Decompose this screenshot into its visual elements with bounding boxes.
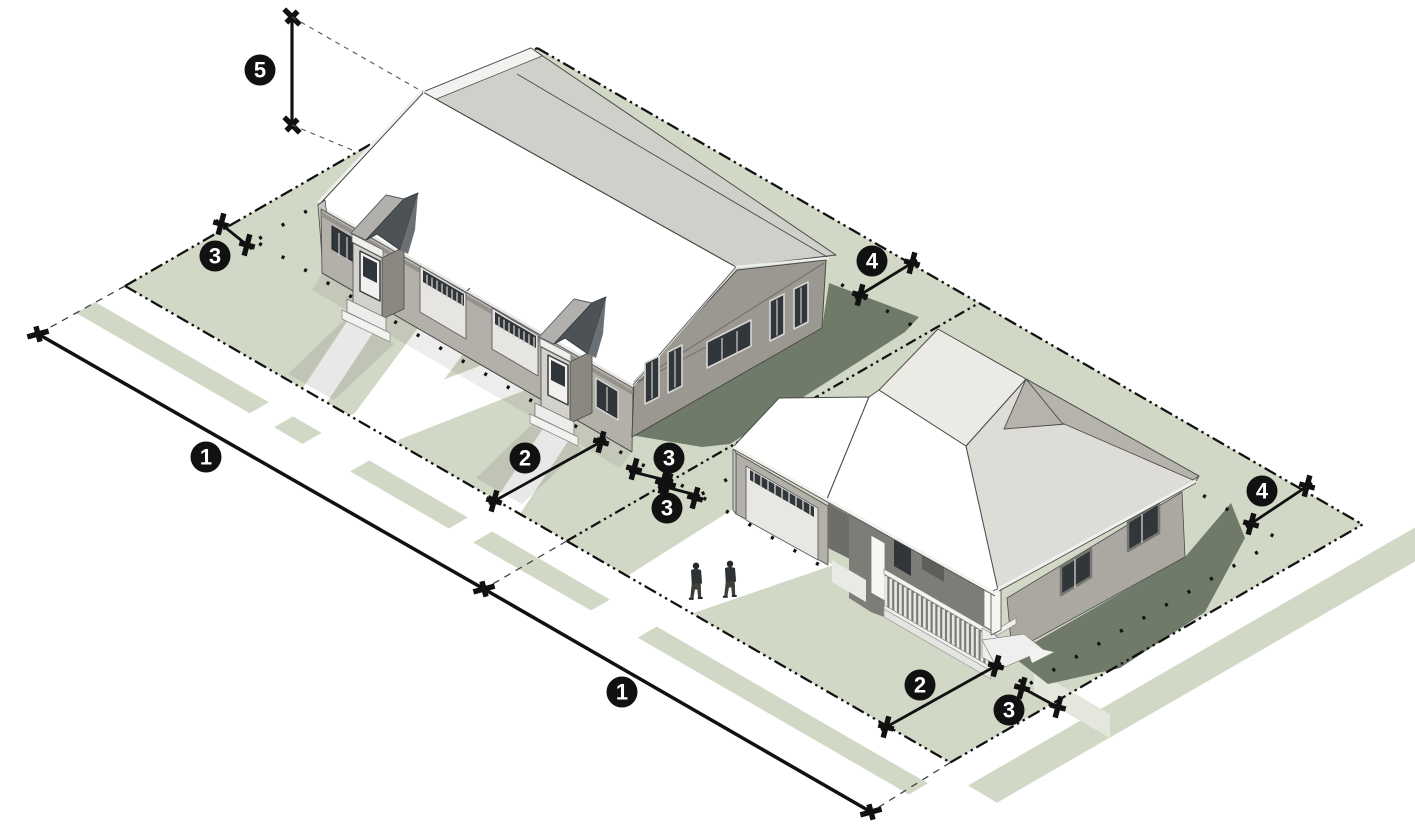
svg-text:4: 4	[1256, 479, 1269, 504]
svg-text:2: 2	[914, 673, 926, 698]
svg-text:5: 5	[254, 58, 266, 83]
svg-text:4: 4	[866, 249, 879, 274]
svg-text:3: 3	[1003, 698, 1015, 723]
svg-text:1: 1	[616, 680, 628, 705]
svg-text:2: 2	[519, 446, 531, 471]
svg-text:3: 3	[661, 496, 673, 521]
svg-text:1: 1	[200, 445, 212, 470]
svg-text:3: 3	[209, 244, 221, 269]
svg-text:3: 3	[663, 446, 675, 471]
